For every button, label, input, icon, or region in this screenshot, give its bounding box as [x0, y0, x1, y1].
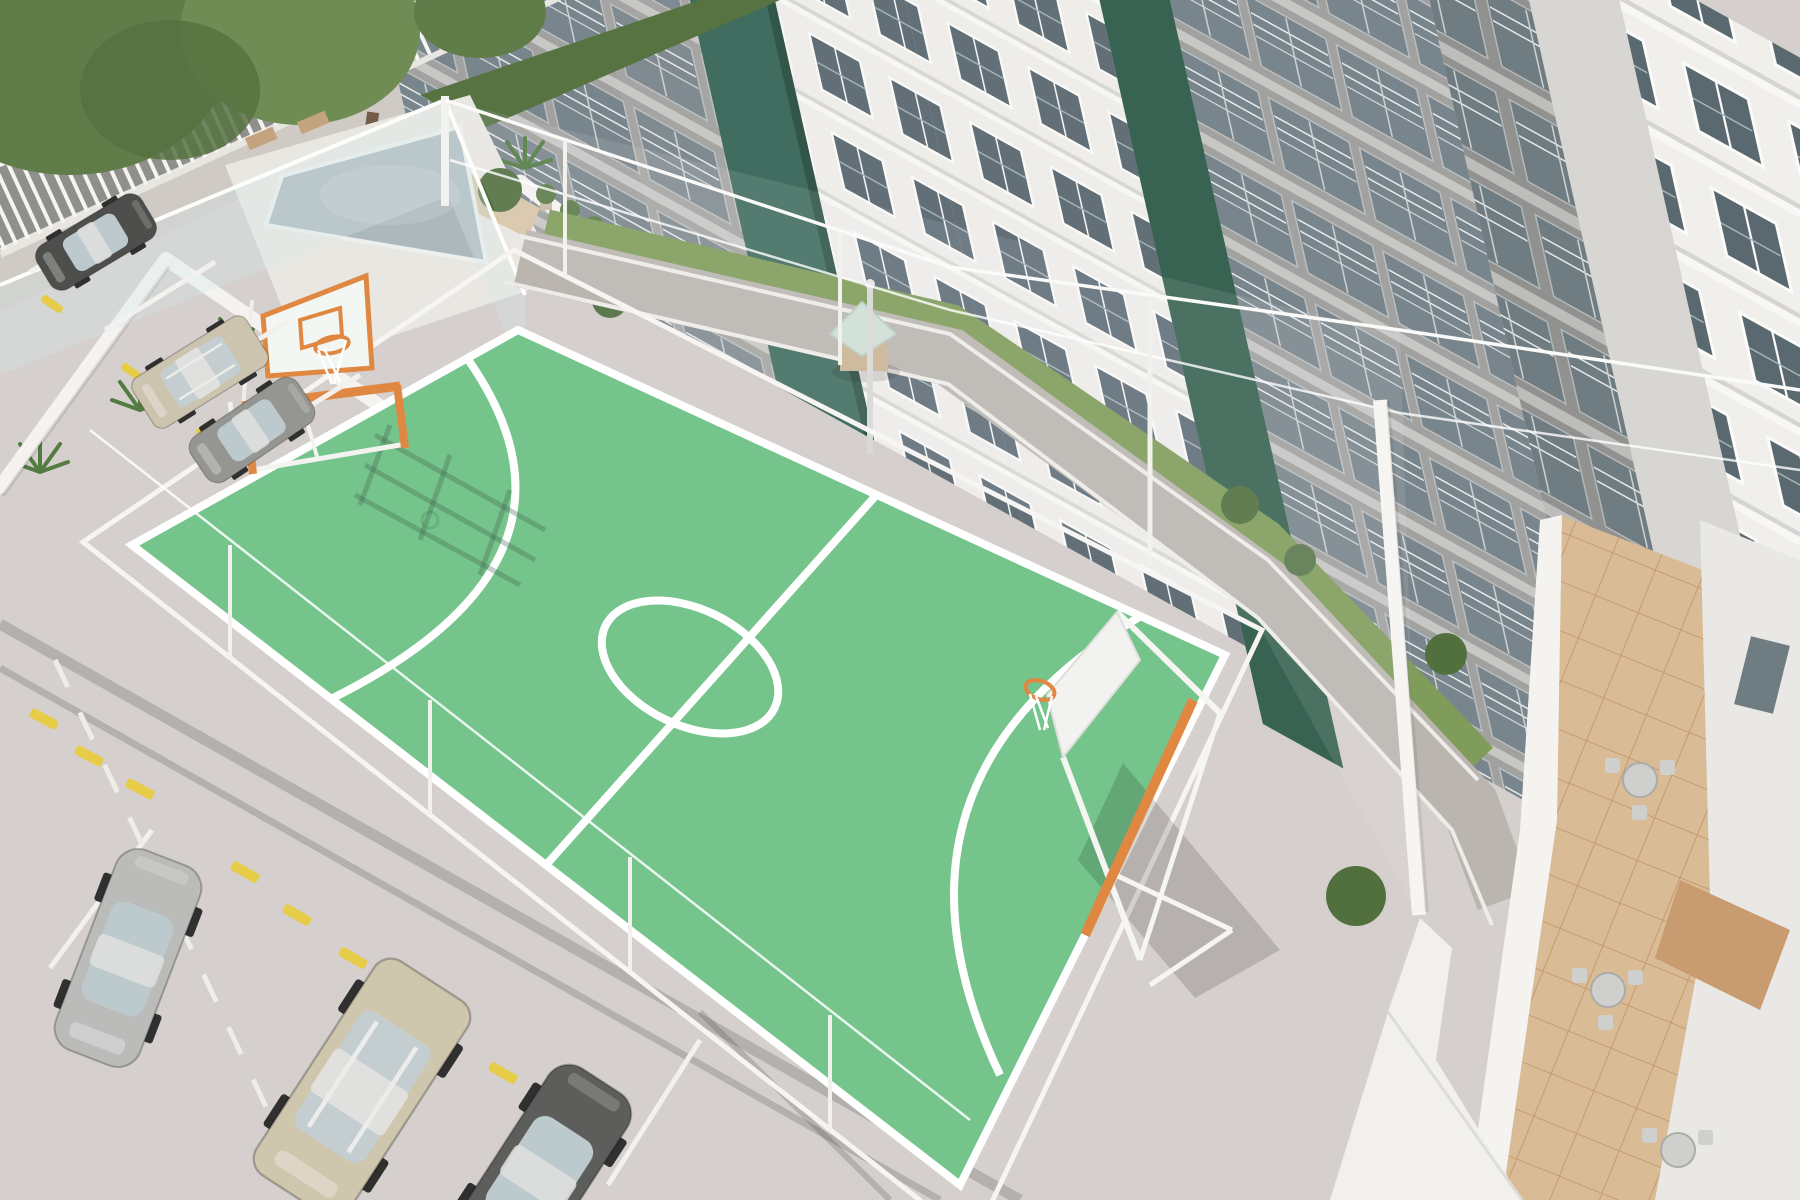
atmosphere-overlay [0, 0, 1800, 1200]
rendered-scene [0, 0, 1800, 1200]
scene-canvas [0, 0, 1800, 1200]
